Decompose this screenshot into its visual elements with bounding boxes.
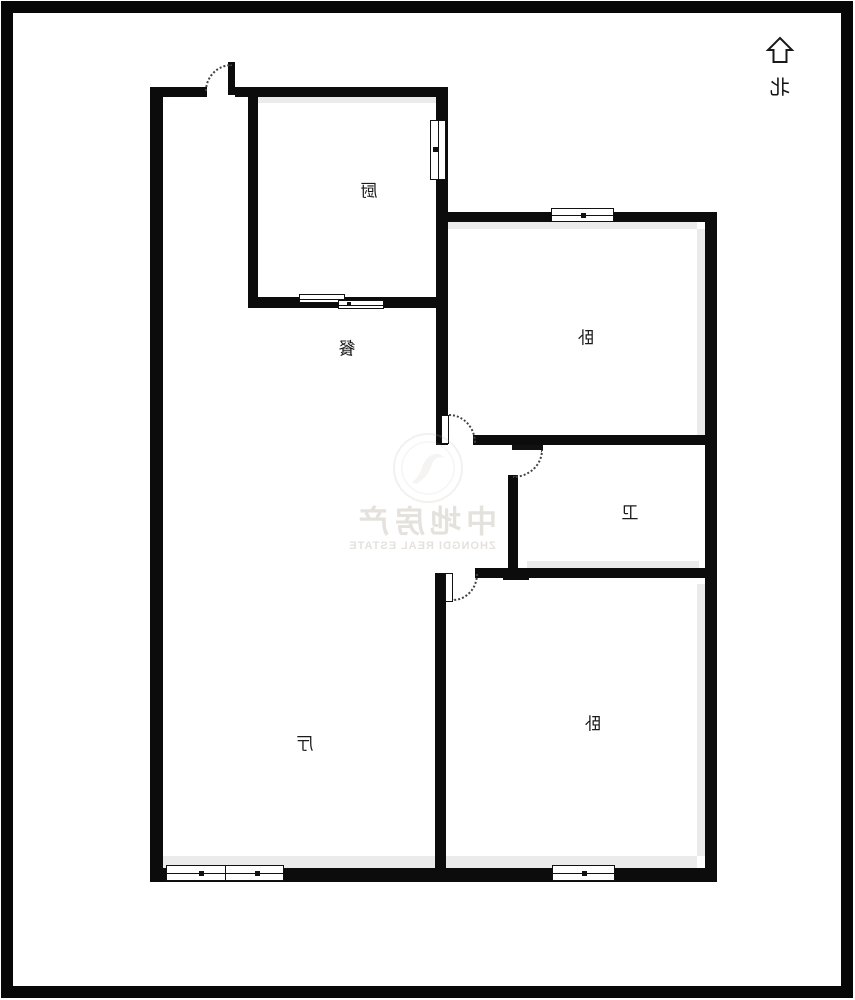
shadow-strip (448, 222, 697, 229)
wall-bedroom1-bottom (473, 435, 717, 445)
room-label-dining: 餐 (339, 341, 356, 358)
wall-bedroom2-top (475, 568, 717, 578)
window-kitchen-side (430, 120, 446, 180)
compass: 北 (755, 36, 805, 100)
wall-kitchen-left (248, 97, 258, 307)
shadow-strip (258, 97, 436, 103)
wall-top-left (150, 87, 207, 97)
wall-left-outer (150, 87, 163, 882)
window-bedroom1-top (551, 208, 614, 222)
wall-top-kitchen (235, 87, 448, 97)
room-label-kitchen: 厨 (361, 183, 378, 200)
watermark-text-cn: 中地房产 (353, 497, 497, 542)
wall-center-lower (435, 573, 446, 882)
window-kitchen-bottom-pane2 (338, 300, 384, 309)
window-living-bottom (166, 865, 284, 881)
room-label-bedroom-top: 卧 (578, 330, 595, 347)
wall-right-outer (705, 212, 717, 882)
bedroom2-door-leaf (445, 573, 453, 602)
floor-plan: 厨 餐 卧 卫 卧 厅 北 中地房产 ZHONGDI REAL ESTATE (0, 0, 855, 1000)
room-label-bathroom: 卫 (622, 505, 639, 522)
north-label: 北 (755, 71, 805, 100)
room-label-living: 厅 (297, 736, 314, 753)
shadow-strip (697, 229, 705, 435)
room-label-bedroom-bottom: 卧 (585, 716, 602, 733)
window-bedroom2-bottom (552, 865, 615, 881)
shadow-strip (527, 561, 699, 568)
north-arrow-icon (765, 36, 795, 64)
shadow-strip (697, 584, 705, 856)
wall-bathroom-left (508, 475, 518, 578)
watermark-text-en: ZHONGDI REAL ESTATE (348, 540, 495, 552)
